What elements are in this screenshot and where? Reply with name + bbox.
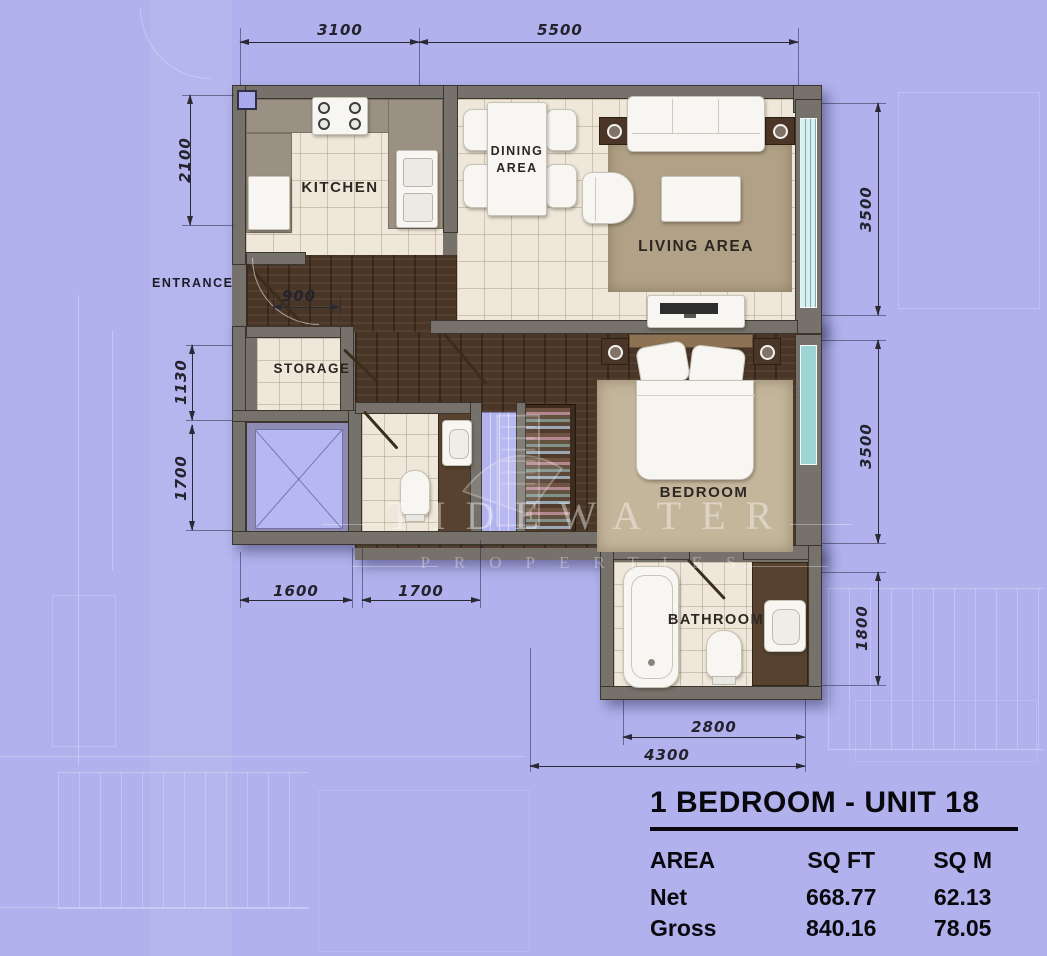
dim-bottom-powder: 1700 <box>389 582 453 600</box>
dim-line-top-kitchen <box>240 42 419 43</box>
dim-line-bottom-powder <box>362 600 480 601</box>
background-outline <box>318 790 530 952</box>
sofa <box>627 96 765 152</box>
floor-plan-page: ENTRANCE KITCHEN DINING AREA LIVING AREA… <box>0 0 1047 956</box>
watermark-name: TIDEWATER <box>380 492 800 539</box>
dim-line-bottom-bathroom <box>623 737 805 738</box>
dim-line-bottom-overall <box>530 766 805 767</box>
watermark-subtitle: PROPERTIES <box>400 553 780 573</box>
dim-left-shaft: 1700 <box>172 438 190 518</box>
bathroom-label: BATHROOM <box>664 612 768 629</box>
background-outline <box>898 92 1040 309</box>
wall-kitchen-divider <box>443 85 458 233</box>
nightstand-lamp <box>601 338 629 365</box>
dim-left-storage: 1130 <box>172 342 190 422</box>
storage-label: STORAGE <box>268 360 356 377</box>
stove-burner <box>349 118 361 130</box>
title-underline <box>650 827 1018 831</box>
kitchen-sink <box>396 150 438 228</box>
shaft <box>246 422 350 535</box>
tv-console <box>647 295 745 328</box>
bed-duvet <box>636 380 754 480</box>
stove <box>312 97 368 135</box>
background-outline <box>52 595 116 747</box>
fridge <box>248 176 290 230</box>
dining-chair <box>545 109 577 151</box>
tub-drain <box>648 659 655 666</box>
dim-left-kitchen: 2100 <box>176 120 194 200</box>
table-row-net: Net 668.77 62.13 <box>650 882 1018 913</box>
background-line <box>112 330 113 570</box>
dim-bottom-bathroom: 2800 <box>682 718 746 736</box>
wall-bathroom-right <box>808 545 822 700</box>
entrance-label: ENTRANCE <box>152 275 230 292</box>
side-table-lamp <box>765 117 795 145</box>
background-line <box>0 907 310 908</box>
dim-line-bottom-shaft <box>240 600 352 601</box>
dim-top-kitchen: 3100 <box>300 21 380 39</box>
shaft-inner <box>255 429 343 529</box>
dim-line-right-living <box>878 103 879 315</box>
dim-line-right-bathroom <box>878 572 879 685</box>
dim-right-bathroom: 1800 <box>853 588 871 668</box>
toilet-base <box>712 676 736 685</box>
table-row-gross: Gross 840.16 78.05 <box>650 913 1018 944</box>
dim-line-right-bedroom <box>878 340 879 543</box>
dim-line-left-storage <box>192 345 193 420</box>
living-area-label: LIVING AREA <box>636 238 756 255</box>
side-table-lamp <box>599 117 629 145</box>
unit-title: 1 BEDROOM - UNIT 18 <box>650 786 1018 820</box>
bedroom-window <box>800 345 817 465</box>
background-stairs <box>58 772 308 909</box>
nightstand-lamp <box>753 338 781 365</box>
wall-storage-top <box>246 326 354 338</box>
dim-top-living: 5500 <box>520 21 600 39</box>
wall-shaft-top <box>232 410 362 422</box>
dim-hall-door: 900 <box>267 287 331 305</box>
wall-left-lower <box>232 326 246 545</box>
col-header-sqm: SQ M <box>907 845 1018 882</box>
stove-burner <box>318 102 330 114</box>
living-window <box>800 118 817 308</box>
background-outline <box>855 700 1037 762</box>
bathroom-sink <box>764 600 806 652</box>
dim-right-bedroom: 3500 <box>857 406 875 486</box>
dim-line-hall-door <box>273 307 340 308</box>
dim-line-left-shaft <box>192 425 193 530</box>
stove-burner <box>349 102 361 114</box>
dining-chair <box>545 164 577 208</box>
dim-right-living: 3500 <box>857 169 875 249</box>
wall-left-upper <box>232 85 246 265</box>
unit-info: 1 BEDROOM - UNIT 18 AREA SQ FT SQ M Net … <box>650 786 1018 944</box>
dining-area-label: DINING AREA <box>487 143 547 177</box>
kitchen-corner-window <box>237 90 257 110</box>
dim-line-top-living <box>419 42 798 43</box>
dim-bottom-shaft: 1600 <box>264 582 328 600</box>
dim-bottom-overall: 4300 <box>635 746 699 764</box>
kitchen-label: KITCHEN <box>296 179 384 196</box>
tv <box>660 303 718 314</box>
coffee-table <box>661 176 741 222</box>
wall-bathroom-bottom <box>600 686 822 700</box>
area-table: AREA SQ FT SQ M Net 668.77 62.13 Gross 8… <box>650 845 1018 944</box>
bathroom-toilet <box>706 630 742 678</box>
armchair <box>582 172 634 224</box>
background-line <box>0 756 525 757</box>
stove-burner <box>318 118 330 130</box>
col-header-sqft: SQ FT <box>775 845 907 882</box>
col-header-area: AREA <box>650 845 775 882</box>
